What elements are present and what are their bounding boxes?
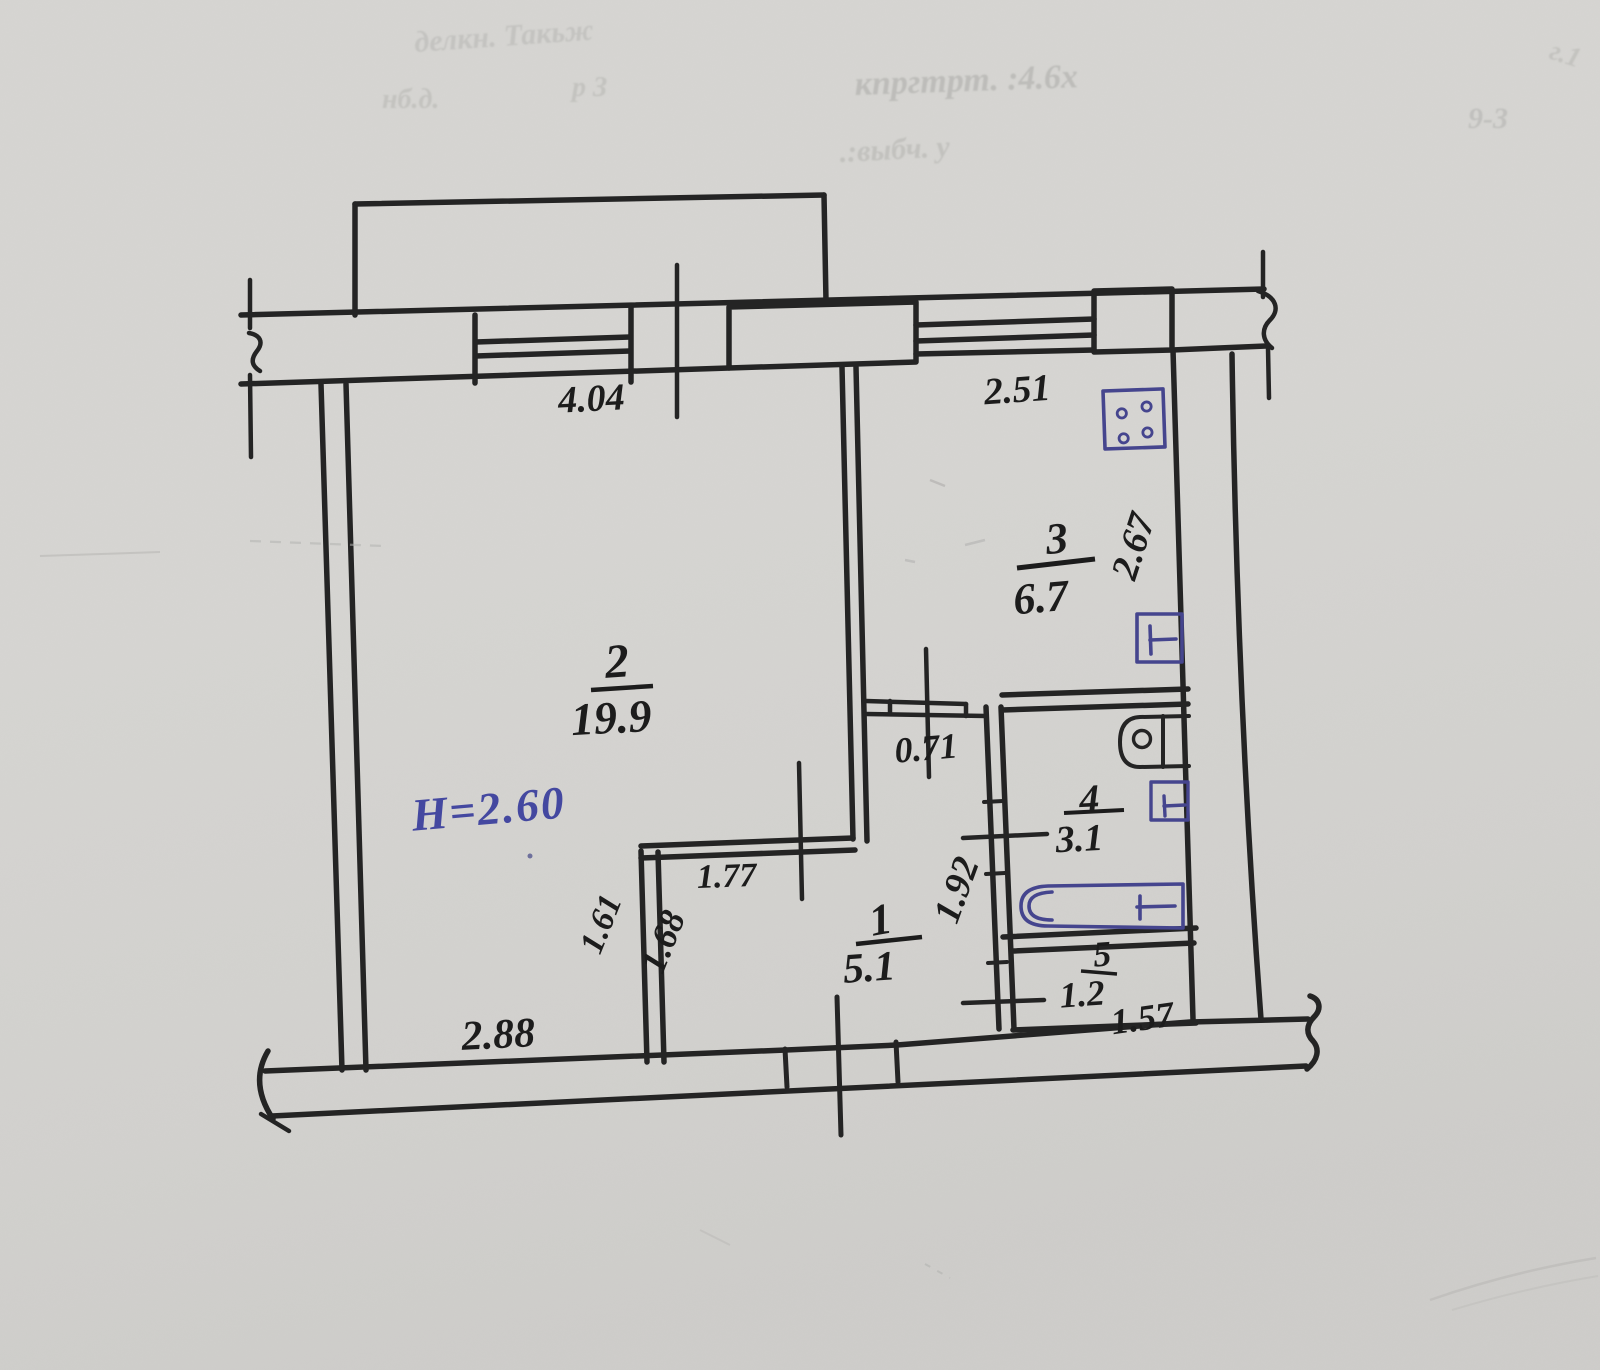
svg-text:1.2: 1.2 — [1058, 973, 1106, 1016]
svg-text:.:выбч. у: .:выбч. у — [839, 130, 952, 169]
svg-text:0.71: 0.71 — [893, 725, 959, 770]
svg-text:9-3: 9-3 — [1468, 102, 1508, 135]
svg-text:1.77: 1.77 — [696, 857, 759, 896]
svg-text:2: 2 — [602, 634, 631, 689]
svg-text:4.04: 4.04 — [556, 376, 626, 421]
svg-text:кпргтрт. :4.6х: кпргтрт. :4.6х — [854, 58, 1079, 103]
svg-text:6.7: 6.7 — [1011, 571, 1072, 625]
svg-text:нб.д.: нб.д. — [382, 84, 439, 115]
svg-text:2.51: 2.51 — [982, 367, 1052, 414]
svg-text:5.1: 5.1 — [841, 943, 897, 993]
svg-text:3.1: 3.1 — [1054, 817, 1105, 861]
svg-text:5: 5 — [1092, 933, 1113, 974]
svg-text:2.88: 2.88 — [459, 1010, 536, 1060]
svg-text:19.9: 19.9 — [570, 690, 653, 745]
svg-text:4: 4 — [1077, 776, 1100, 822]
svg-text:3: 3 — [1043, 513, 1070, 564]
svg-text:р З: р З — [570, 72, 607, 103]
